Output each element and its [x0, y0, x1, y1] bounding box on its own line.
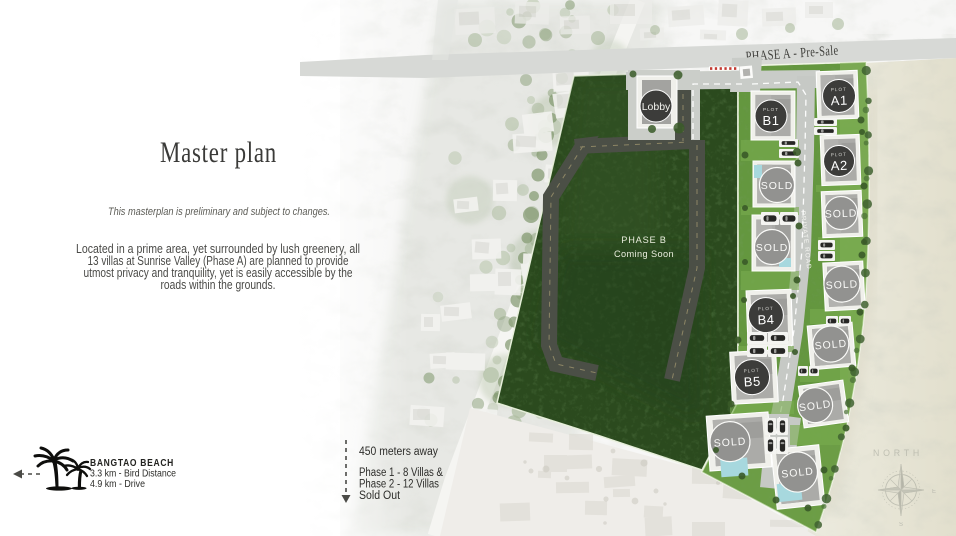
svg-text:Master plan: Master plan	[160, 136, 277, 169]
svg-text:S: S	[899, 522, 903, 528]
svg-text:SOLD: SOLD	[756, 242, 789, 254]
svg-text:Coming Soon: Coming Soon	[614, 249, 674, 259]
svg-text:PLOT: PLOT	[758, 306, 774, 312]
svg-text:450 meters away: 450 meters away	[359, 446, 438, 458]
svg-text:4.9 km - Drive: 4.9 km - Drive	[90, 479, 145, 490]
svg-text:Sold Out: Sold Out	[359, 490, 401, 502]
svg-text:B4: B4	[757, 312, 774, 328]
svg-text:NORTH: NORTH	[873, 448, 923, 458]
svg-text:PLOT: PLOT	[763, 107, 779, 112]
svg-text:A1: A1	[830, 93, 847, 109]
svg-text:roads within the grounds.: roads within the grounds.	[161, 278, 276, 292]
svg-text:Phase 2 - 12 Villas: Phase 2 - 12 Villas	[359, 479, 439, 491]
svg-text:SOLD: SOLD	[713, 436, 746, 450]
svg-text:SOLD: SOLD	[825, 207, 858, 220]
svg-text:Lobby: Lobby	[642, 101, 671, 113]
svg-text:Phase 1 - 8 Villas &: Phase 1 - 8 Villas &	[359, 467, 443, 479]
svg-text:PLOT: PLOT	[831, 152, 847, 158]
svg-text:PHASE B: PHASE B	[621, 235, 666, 245]
svg-text:3.3 km - Bird Distance: 3.3 km - Bird Distance	[90, 469, 176, 480]
svg-text:B1: B1	[763, 113, 780, 128]
svg-text:SOLD: SOLD	[761, 180, 794, 192]
svg-text:E: E	[932, 489, 936, 495]
svg-text:This masterplan is preliminary: This masterplan is preliminary and subje…	[108, 206, 330, 218]
svg-text:SOLD: SOLD	[825, 278, 858, 292]
svg-text:PLOT: PLOT	[831, 87, 847, 93]
svg-text:B5: B5	[743, 374, 761, 390]
svg-text:A2: A2	[830, 158, 847, 174]
svg-text:PLOT: PLOT	[744, 368, 760, 374]
svg-text:BANGTAO BEACH: BANGTAO BEACH	[90, 458, 174, 469]
